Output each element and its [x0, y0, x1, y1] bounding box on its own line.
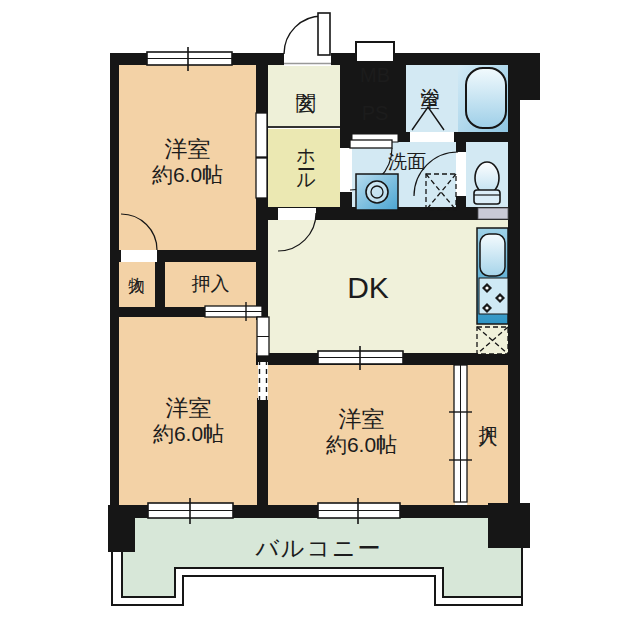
label-bedroom-bottom-left: 洋室 約6.0帖	[119, 395, 258, 446]
floor-plan: 洋室 約6.0帖 玄関 ホール MB PS 浴室 洗面 物入 押入 DK 洋室 …	[0, 0, 640, 640]
label-bedroom-top-left: 洋室 約6.0帖	[119, 136, 256, 187]
stove-icon	[479, 278, 508, 314]
label-bedroom-bottom-right: 洋室 約6.0帖	[268, 406, 455, 457]
sliding-door-bedroom2	[257, 317, 269, 356]
wall-bedroom-divider	[257, 398, 268, 505]
opening-bedroom-divider	[258, 360, 268, 402]
label-dining-kitchen: DK	[328, 271, 408, 306]
entrance-door	[284, 13, 331, 66]
room-size: 約6.0帖	[119, 163, 256, 187]
room-entrance	[268, 64, 340, 127]
room-name: 洋室	[119, 395, 258, 422]
mb-notch	[356, 42, 394, 62]
wall-right	[508, 53, 520, 518]
room-size: 約6.0帖	[119, 422, 258, 446]
label-meter-box: MB	[352, 64, 398, 87]
pillar-bottom-left	[108, 505, 135, 552]
wall-storage-divider	[155, 262, 165, 308]
label-balcony: バルコニー	[219, 535, 419, 562]
door-leaf	[350, 140, 392, 148]
room-size: 約6.0帖	[268, 433, 455, 457]
label-hall: ホール	[295, 135, 317, 184]
kitchen-sink-icon	[480, 234, 505, 276]
room-closet-right	[467, 365, 508, 505]
bathtub-icon	[466, 68, 506, 128]
room-name: 洋室	[268, 406, 455, 433]
room-storage	[119, 262, 155, 307]
sliding-door-bedroom1	[256, 113, 267, 198]
door-leaf	[318, 13, 330, 55]
label-pipe-space: PS	[352, 102, 398, 125]
label-closet-right: 押入	[477, 410, 499, 414]
label-washroom: 洗面	[372, 151, 442, 173]
wall-left	[110, 53, 119, 518]
pillar-bottom-right	[488, 503, 530, 548]
washbasin-icon	[356, 174, 398, 210]
kitchen-shelf	[478, 208, 508, 219]
label-closet-middle: 押入	[165, 273, 256, 295]
bath-threshold	[410, 132, 454, 142]
label-entrance: 玄関	[294, 76, 317, 80]
label-storage: 物入	[127, 264, 146, 266]
room-name: 洋室	[119, 136, 256, 163]
door-swing-arc	[284, 16, 322, 54]
refrigerator-space-icon	[477, 327, 508, 354]
label-bathroom: 浴室	[419, 73, 441, 77]
entrance-hall-step-line	[268, 126, 340, 128]
toilet-icon	[474, 162, 500, 204]
